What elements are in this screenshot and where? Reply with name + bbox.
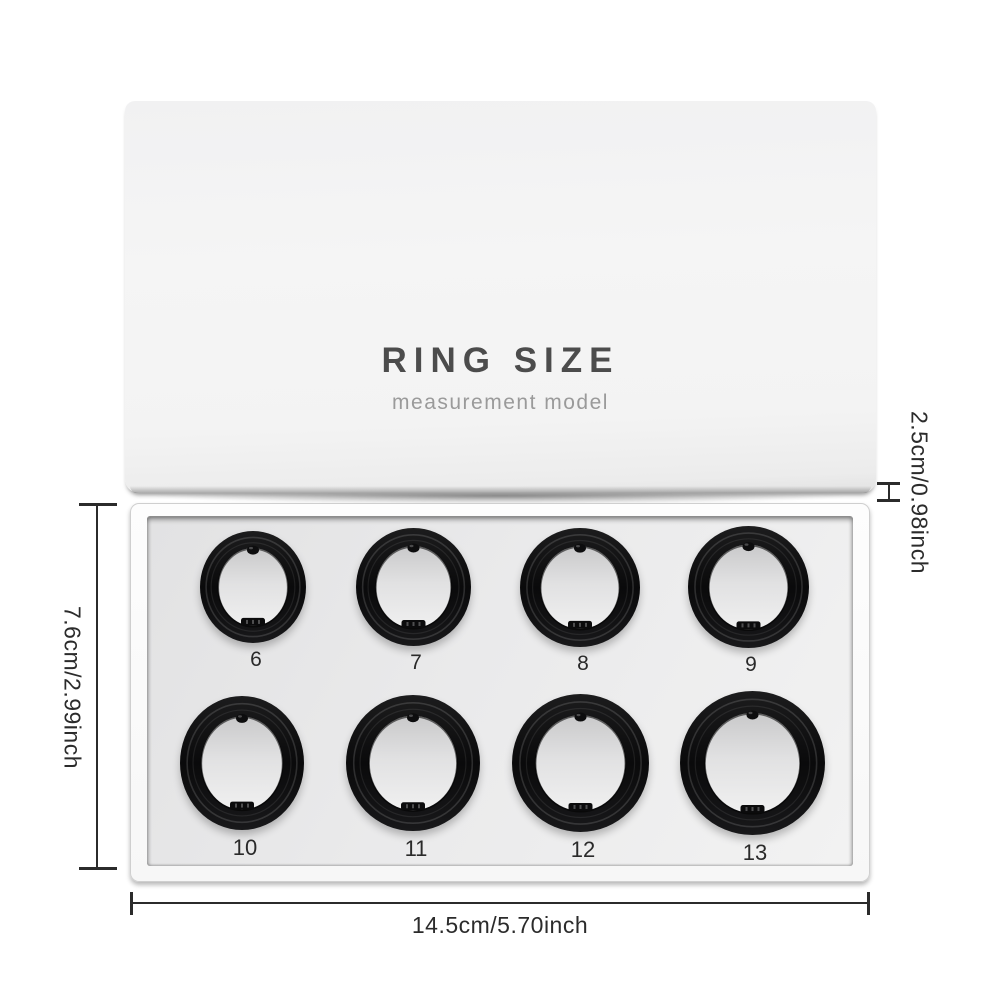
- ring: [179, 695, 305, 831]
- ring-size-label: 11: [376, 836, 456, 862]
- ring-size-label: 10: [205, 835, 285, 861]
- depth-dimension-label: 7.6cm/2.99inch: [58, 504, 86, 870]
- dimension-cap: [877, 499, 900, 502]
- width-dimension-label: 14.5cm/5.70inch: [131, 912, 869, 939]
- ring: [199, 530, 307, 644]
- ring-size-label: 9: [711, 653, 791, 677]
- ring-graphic: [511, 693, 650, 833]
- ring-graphic: [199, 530, 307, 644]
- depth-dimension-line: [96, 504, 98, 870]
- lid-subtitle: measurement model: [125, 391, 876, 415]
- width-dimension-line: [131, 902, 869, 904]
- product-photo: RING SIZE measurement model: [0, 0, 1001, 1001]
- ring: [679, 690, 826, 836]
- ring: [345, 694, 481, 832]
- ring-size-label: 12: [543, 837, 623, 863]
- dimension-cap: [877, 482, 900, 485]
- ring-graphic: [179, 695, 305, 831]
- ring-graphic: [519, 527, 641, 648]
- ring-size-label: 6: [216, 648, 296, 672]
- ring: [519, 527, 641, 648]
- ring-graphic: [679, 690, 826, 836]
- lid-height-dimension-label: 2.5cm/0.98inch: [905, 402, 933, 582]
- ring: [355, 527, 472, 647]
- ring-graphic: [345, 694, 481, 832]
- ring-graphic: [355, 527, 472, 647]
- lid-height-dimension-line: [888, 484, 890, 500]
- ring: [511, 693, 650, 833]
- ring: [687, 525, 810, 649]
- box-lid: RING SIZE measurement model: [125, 101, 876, 493]
- ring-size-label: 8: [543, 652, 623, 676]
- lid-title: RING SIZE: [125, 341, 876, 381]
- ring-size-label: 13: [715, 840, 795, 866]
- ring-graphic: [687, 525, 810, 649]
- ring-size-label: 7: [376, 651, 456, 675]
